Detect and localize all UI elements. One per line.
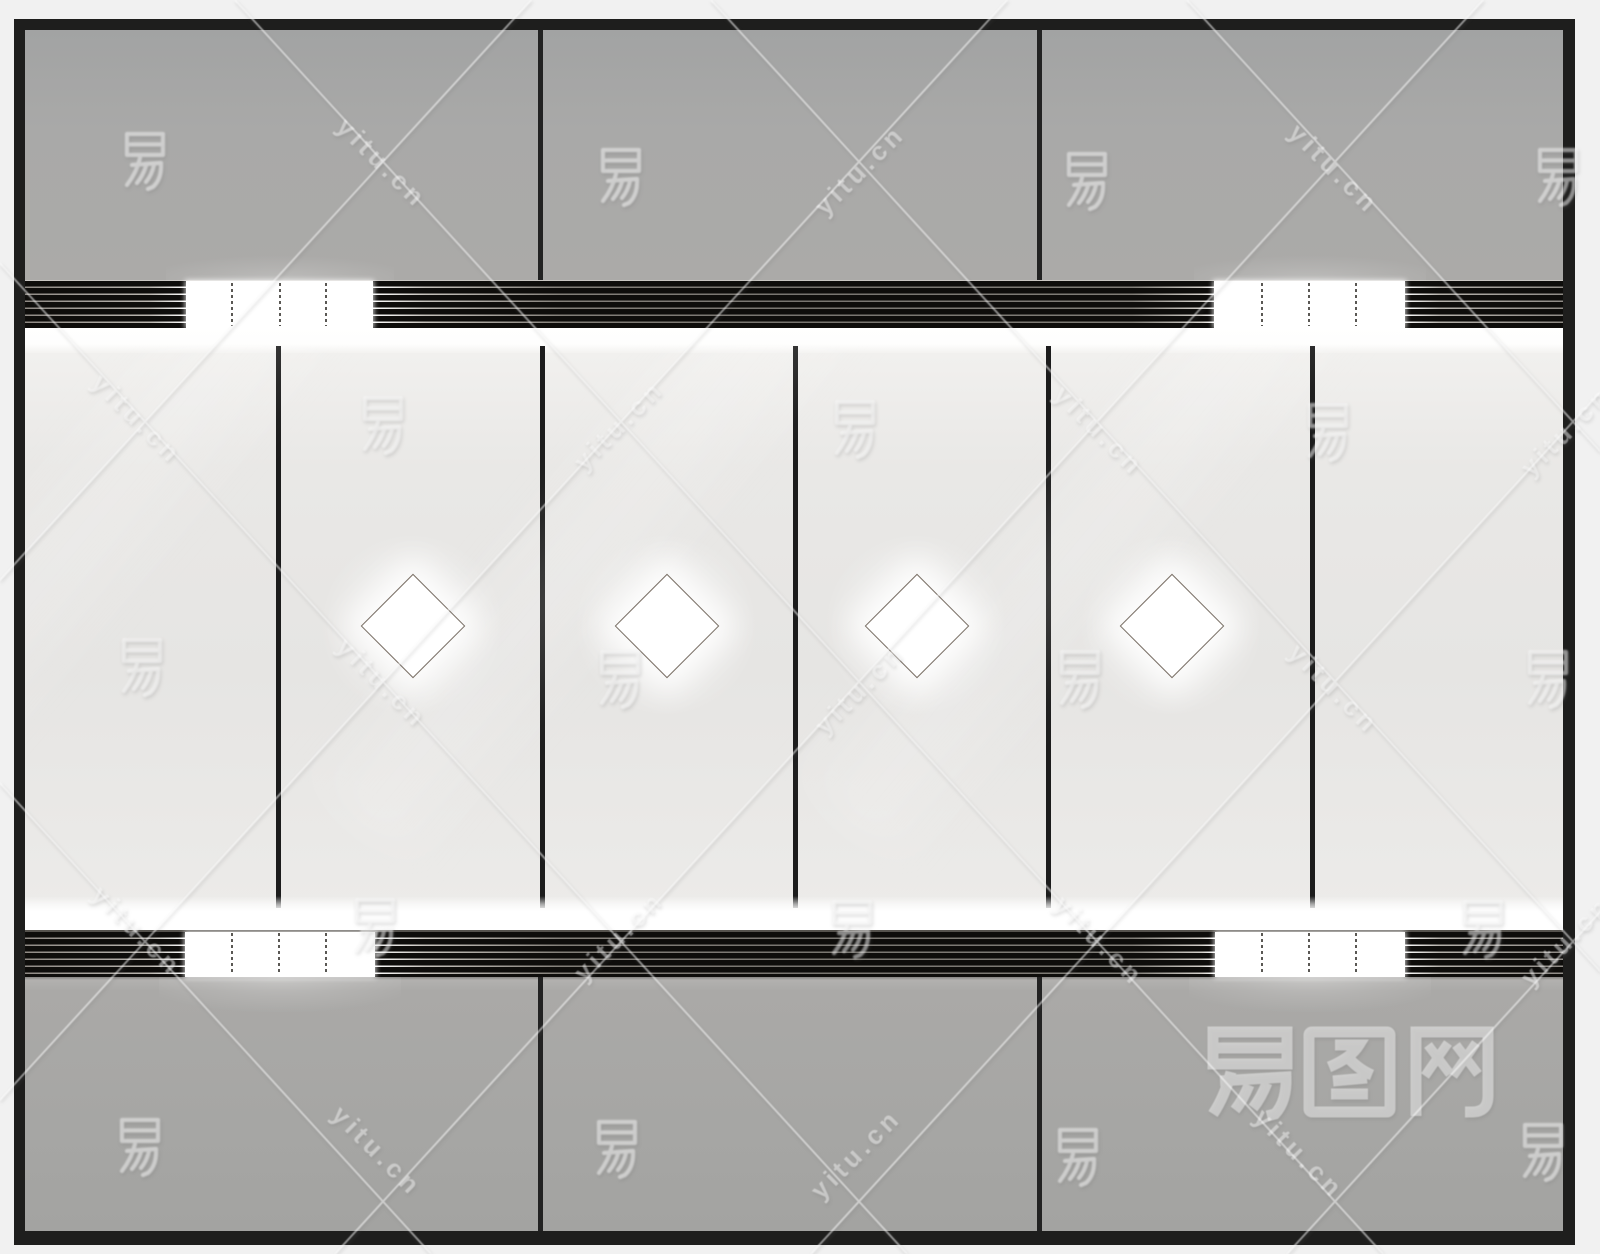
svg-text:yitu.cn: yitu.cn bbox=[1248, 1102, 1351, 1205]
svg-text:yitu.cn: yitu.cn bbox=[808, 118, 911, 221]
svg-text:yitu.cn: yitu.cn bbox=[1514, 379, 1600, 482]
svg-text:yitu.cn: yitu.cn bbox=[86, 367, 189, 470]
svg-text:yitu.cn: yitu.cn bbox=[331, 631, 434, 734]
svg-text:yitu.cn: yitu.cn bbox=[331, 111, 434, 214]
svg-text:yitu.cn: yitu.cn bbox=[1283, 637, 1386, 740]
svg-text:yitu.cn: yitu.cn bbox=[1048, 889, 1151, 992]
svg-text:yitu.cn: yitu.cn bbox=[1514, 889, 1600, 992]
svg-text:yitu.cn: yitu.cn bbox=[804, 1102, 907, 1205]
svg-text:yitu.cn: yitu.cn bbox=[1283, 117, 1386, 220]
svg-text:yitu.cn: yitu.cn bbox=[567, 373, 670, 476]
svg-text:yitu.cn: yitu.cn bbox=[326, 1099, 429, 1202]
svg-text:yitu.cn: yitu.cn bbox=[86, 879, 189, 982]
svg-text:yitu.cn: yitu.cn bbox=[808, 637, 911, 740]
svg-text:yitu.cn: yitu.cn bbox=[1048, 379, 1151, 482]
